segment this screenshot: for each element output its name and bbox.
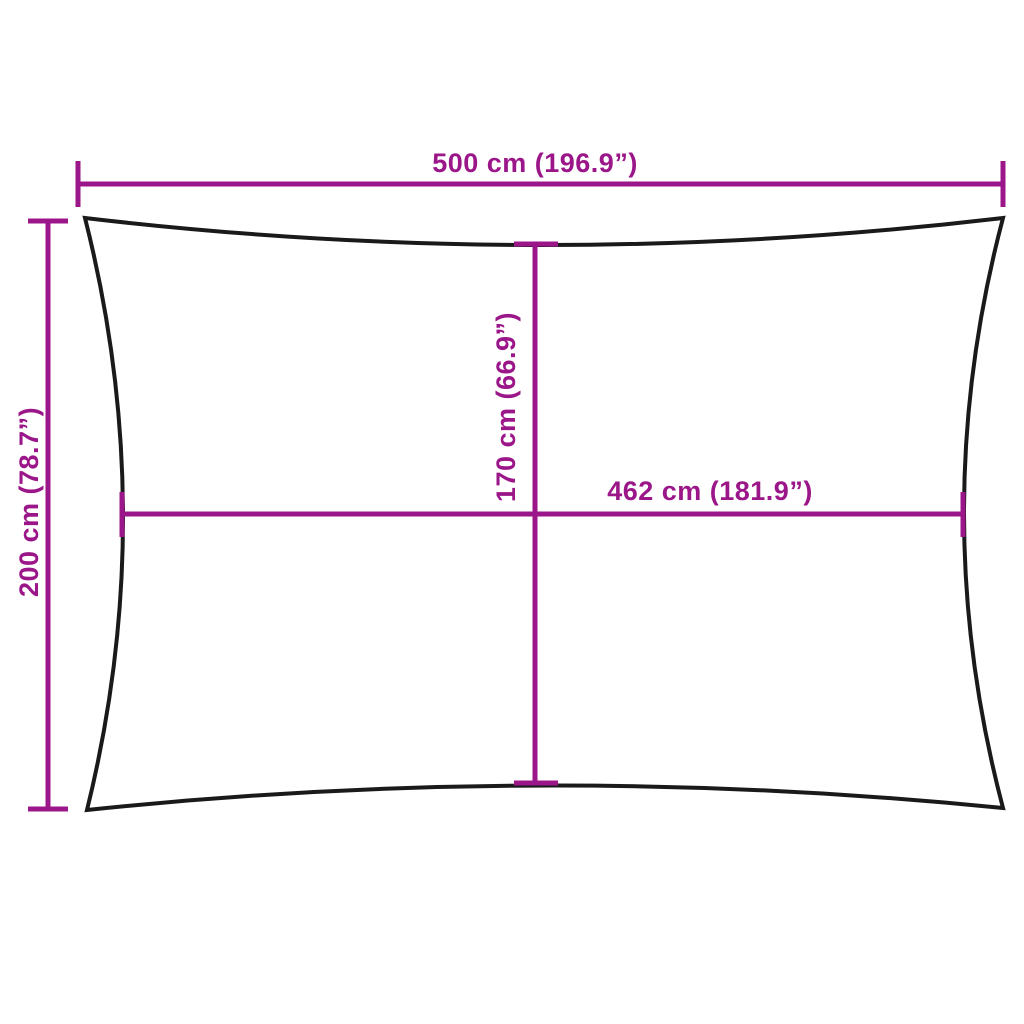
dimension-outer-width: 500 cm (196.9”) [78, 148, 1003, 207]
dimension-diagram: 500 cm (196.9”) 200 cm (78.7”) 170 cm (6… [0, 0, 1024, 1024]
dimension-inner-width: 462 cm (181.9”) [122, 476, 963, 537]
dimension-inner-height-label: 170 cm (66.9”) [491, 312, 521, 502]
dimension-outer-height: 200 cm (78.7”) [14, 221, 68, 809]
dimension-diagram-svg: 500 cm (196.9”) 200 cm (78.7”) 170 cm (6… [0, 0, 1024, 1024]
dimension-outer-width-label: 500 cm (196.9”) [432, 148, 638, 178]
dimension-inner-width-label: 462 cm (181.9”) [607, 476, 813, 506]
dimension-outer-height-label: 200 cm (78.7”) [14, 407, 44, 597]
